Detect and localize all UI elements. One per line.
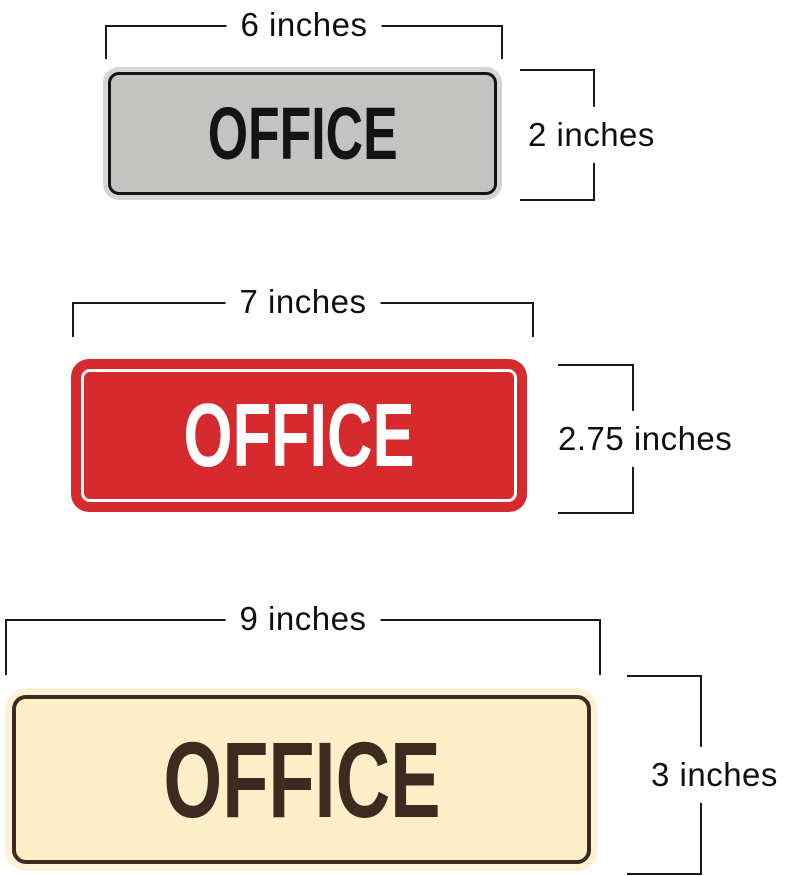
width-dimension-bracket: 7 inches [72,302,534,337]
height-dimension-label: 2.75 inches [552,411,738,467]
sign-face: OFFICE [81,369,517,502]
sign-text: OFFICE [184,391,415,481]
sign-face: OFFICE [108,72,497,195]
sign-text: OFFICE [208,97,398,171]
width-dimension-bracket: 6 inches [105,25,503,59]
width-dimension-label: 6 inches [227,7,382,43]
height-dimension-bracket: 3 inches [627,675,702,875]
sign-face: OFFICE [12,695,591,864]
office-sign-red: OFFICE [71,359,527,512]
height-dimension-label: 2 inches [522,107,661,163]
office-sign-cream: OFFICE [5,688,598,871]
height-dimension-bracket: 2.75 inches [558,364,634,514]
product-dimension-diagram: 6 inches OFFICE 2 inches 7 inches OFFICE… [0,0,795,876]
height-dimension-bracket: 2 inches [520,69,595,201]
height-dimension-label: 3 inches [645,747,784,803]
office-sign-silver: OFFICE [103,67,502,200]
sign-text: OFFICE [163,726,440,834]
width-dimension-bracket: 9 inches [5,619,601,675]
width-dimension-label: 9 inches [226,601,381,637]
width-dimension-label: 7 inches [226,284,381,320]
